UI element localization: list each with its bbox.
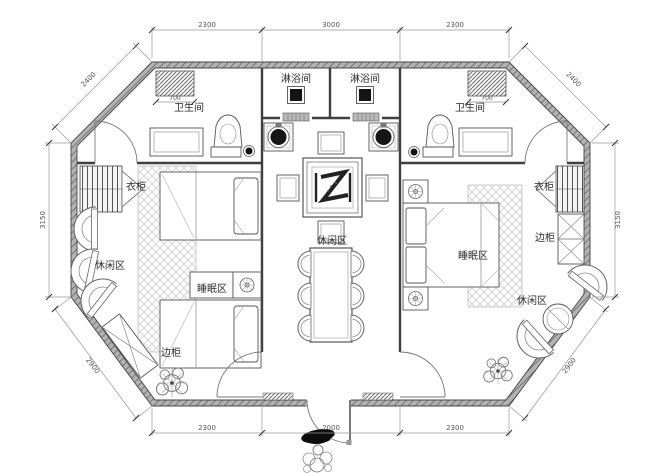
washbasin-left (264, 123, 293, 151)
floor-plan-drawing: 淋浴间 淋浴间 卫生间 卫生间 衣柜 衣柜 睡眠区 睡眠区 休闲区 休闲区 休闲… (0, 0, 651, 473)
vanity-counter-left (156, 71, 194, 96)
washbasin-right (369, 123, 398, 151)
label-leisure-area-right: 休闲区 (517, 294, 547, 307)
table-lamp-right-bottom (409, 292, 423, 306)
label-leisure-area-center: 休闲区 (317, 234, 347, 247)
label-wardrobe-left: 衣柜 (126, 180, 146, 193)
dim-side-left: 3150 (39, 211, 47, 229)
dim-bottom-center: 2000 (322, 424, 340, 432)
label-leisure-area-left: 休闲区 (95, 259, 125, 272)
dim-vanity-right: 700 (481, 95, 493, 102)
shower-fixture-left (283, 113, 309, 121)
label-wardrobe-right: 衣柜 (534, 180, 554, 193)
table-lamp-left (240, 278, 254, 292)
dim-top-left: 2300 (198, 21, 216, 29)
floor-drain-left (288, 87, 305, 104)
label-bathroom-left: 卫生间 (174, 101, 204, 114)
label-shower-room-right: 淋浴间 (350, 72, 380, 85)
floor-drain-right (357, 87, 374, 104)
dim-side-right: 3150 (614, 211, 622, 229)
floor-plan-page: 淋浴间 淋浴间 卫生间 卫生间 衣柜 衣柜 睡眠区 睡眠区 休闲区 休闲区 休闲… (0, 0, 651, 473)
mahjong-table (303, 158, 362, 217)
table-lamp-right-top (409, 185, 423, 199)
label-sleeping-area-right: 睡眠区 (458, 249, 488, 262)
door-stop (347, 440, 352, 445)
label-side-cabinet-right: 边柜 (535, 231, 555, 244)
dim-bottom-right: 2300 (446, 424, 464, 432)
vanity-counter-right (468, 71, 506, 96)
dim-top-right: 2300 (446, 21, 464, 29)
double-bed (403, 203, 499, 287)
side-cabinet-right (558, 214, 584, 264)
dim-vanity-left: 700 (169, 95, 181, 102)
twin-bed-top (160, 172, 261, 240)
shower-fixture-right (353, 113, 379, 121)
threshold-right (363, 393, 393, 400)
label-side-cabinet-left: 边柜 (161, 346, 181, 359)
label-bathroom-right: 卫生间 (455, 101, 485, 114)
dim-bottom-left: 2300 (198, 424, 216, 432)
entrance-opening (307, 398, 352, 408)
label-shower-room-left: 淋浴间 (281, 72, 311, 85)
threshold-left (263, 393, 293, 400)
dim-top-center: 3000 (322, 21, 340, 29)
dining-table (310, 248, 352, 342)
label-sleeping-area-left: 睡眠区 (197, 282, 227, 295)
round-table-right (543, 304, 573, 334)
